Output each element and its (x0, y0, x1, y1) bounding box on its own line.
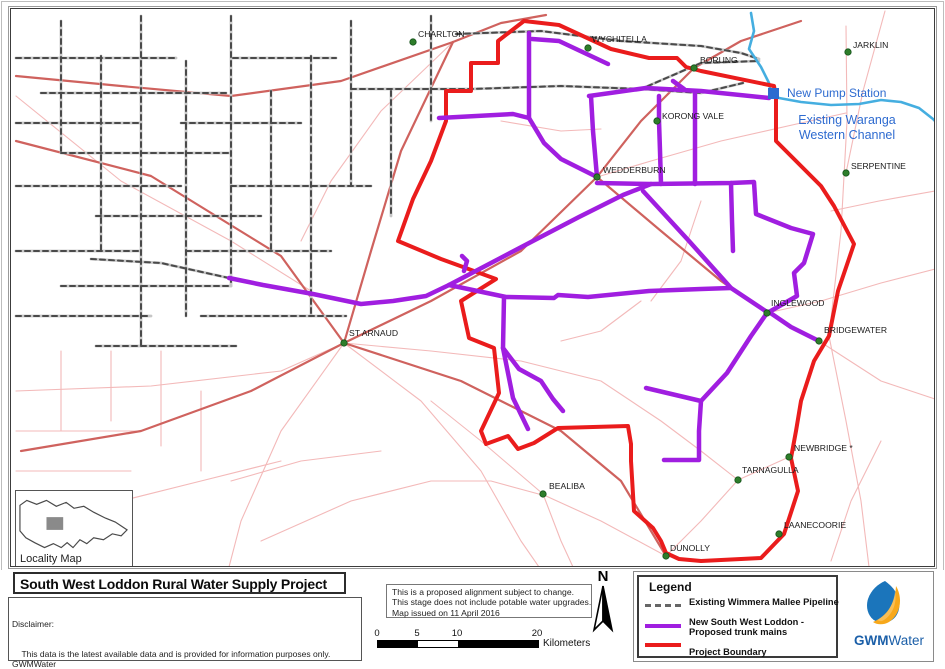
victoria-outline-icon (17, 493, 131, 555)
legend-item: New South West Loddon - Proposed trunk m… (645, 616, 836, 639)
trunk-main (591, 96, 597, 177)
trunk-main-swatch (645, 624, 681, 628)
bottom-panel: South West Loddon Rural Water Supply Pro… (0, 570, 945, 669)
town-dot (764, 310, 770, 316)
road-major (344, 343, 666, 556)
town-dot (776, 531, 782, 537)
scale-tick: 5 (414, 628, 419, 639)
north-arrow-icon (591, 584, 615, 634)
road-thin (16, 343, 344, 391)
town-dot (691, 65, 697, 71)
town-dot (843, 170, 849, 176)
note-line: This stage does not include potable wate… (392, 597, 586, 607)
scale-bar-segments (377, 640, 539, 648)
project-area-marker (46, 517, 63, 530)
note-line: Map issued on 11 April 2016 (392, 608, 586, 618)
trunk-main (731, 183, 733, 251)
blue-annotation-label: New Pump Station (787, 86, 886, 100)
road-thin (651, 201, 701, 301)
map-frame: CHARLTONWYCHITELLABORUNGJARKLINKORONG VA… (8, 6, 937, 569)
legend-item-label: Existing Wimmera Mallee Pipeline (689, 597, 839, 607)
town-label: WYCHITELLA (592, 34, 647, 44)
town-dot (540, 491, 546, 497)
disclaimer-line: Disclaimer: (12, 619, 358, 629)
north-arrow: N (590, 570, 616, 638)
legend-item: Existing Wimmera Mallee Pipeline (645, 596, 836, 616)
new-pump-station-marker (768, 88, 779, 99)
town-label: BRIDGEWATER (824, 325, 887, 335)
note-box: This is a proposed alignment subject to … (386, 584, 592, 618)
project-boundary (398, 21, 854, 561)
existing-pipeline-swatch (645, 604, 681, 607)
legend-item-label: Project Boundary (689, 647, 767, 657)
map-title: South West Loddon Rural Water Supply Pro… (13, 572, 346, 594)
trunk-main (646, 388, 701, 460)
trunk-main (439, 114, 529, 118)
town-label: WEDDERBURN (603, 165, 666, 175)
legend-title: Legend (649, 580, 836, 594)
road-thin (229, 343, 344, 567)
scale-bar: 0 5 10 20 Kilometers (373, 628, 603, 652)
town-label: ST ARNAUD (349, 328, 398, 338)
north-label: N (590, 570, 616, 584)
road-major (344, 177, 597, 343)
town-label: BEALIBA (549, 481, 585, 491)
project-boundary-swatch (645, 643, 681, 647)
trunk-main (701, 313, 767, 401)
trunk-main (589, 88, 769, 98)
trunk-main (769, 312, 817, 340)
town-label: LAANECOORIE (784, 520, 846, 530)
road-thin (261, 481, 666, 556)
town-dot (594, 174, 600, 180)
legend-logo-frame: Legend Existing Wimmera Mallee Pipeline … (633, 571, 934, 662)
existing-pipeline-casing (91, 259, 229, 278)
town-dot (410, 39, 416, 45)
road-thin (831, 191, 935, 211)
town-dot (585, 45, 591, 51)
locality-map-label: Locality Map (20, 553, 82, 565)
town-label: NEWBRIDGE * (794, 443, 853, 453)
town-dot (341, 340, 347, 346)
town-label: BORUNG (700, 55, 738, 65)
trunk-main (462, 256, 467, 271)
scale-tick: 20 (532, 628, 543, 639)
trunk-main (449, 285, 731, 298)
town-label: KORONG VALE (662, 111, 724, 121)
road-thin (831, 441, 881, 561)
legend-item-label: New South West Loddon - Proposed trunk m… (689, 617, 804, 638)
town-label: CHARLTON (418, 29, 464, 39)
gwmwater-wordmark: GWMWater (846, 633, 932, 648)
gwmwater-flame-icon (863, 580, 915, 626)
road-major (21, 343, 344, 451)
scale-tick: 0 (374, 628, 379, 639)
road-thin (231, 451, 381, 481)
trunk-main (643, 191, 767, 312)
town-dot (663, 553, 669, 559)
town-dot (786, 454, 792, 460)
trunk-main (229, 278, 449, 304)
disclaimer-line: This data is the latest available data a… (12, 649, 358, 669)
town-label: SERPENTINE (851, 161, 906, 171)
blue-annotation-label: Western Channel (799, 128, 895, 142)
town-label: INGLEWOOD (771, 298, 824, 308)
town-dot (816, 338, 822, 344)
road-thin (819, 341, 935, 399)
trunk-main (449, 184, 651, 285)
road-thin (501, 121, 601, 131)
gwmwater-logo: GWMWater (846, 580, 932, 652)
map-sheet: CHARLTONWYCHITELLABORUNGJARKLINKORONG VA… (0, 0, 945, 669)
road-thin (543, 494, 573, 567)
town-dot (735, 477, 741, 483)
note-line: This is a proposed alignment subject to … (392, 587, 586, 597)
town-dot (845, 49, 851, 55)
blue-annotation-label: Existing Waranga (798, 113, 896, 127)
legend-panel: Legend Existing Wimmera Mallee Pipeline … (637, 575, 838, 658)
locality-map-inset: Locality Map (15, 490, 133, 567)
town-label: DUNOLLY (670, 543, 710, 553)
map-canvas: CHARLTONWYCHITELLABORUNGJARKLINKORONG VA… (10, 8, 935, 567)
legend-item: Project Boundary (645, 639, 836, 659)
scale-unit: Kilometers (543, 638, 590, 649)
town-dot (654, 118, 660, 124)
town-label: JARKLIN (853, 40, 888, 50)
map-drawing: CHARLTONWYCHITELLABORUNGJARKLINKORONG VA… (11, 9, 935, 567)
town-label: TARNAGULLA (742, 465, 799, 475)
road-thin (561, 301, 641, 341)
disclaimer-box: Disclaimer: This data is the latest avai… (8, 597, 362, 661)
victoria-outline (20, 500, 127, 547)
scale-tick: 10 (452, 628, 463, 639)
road-major (16, 141, 344, 343)
